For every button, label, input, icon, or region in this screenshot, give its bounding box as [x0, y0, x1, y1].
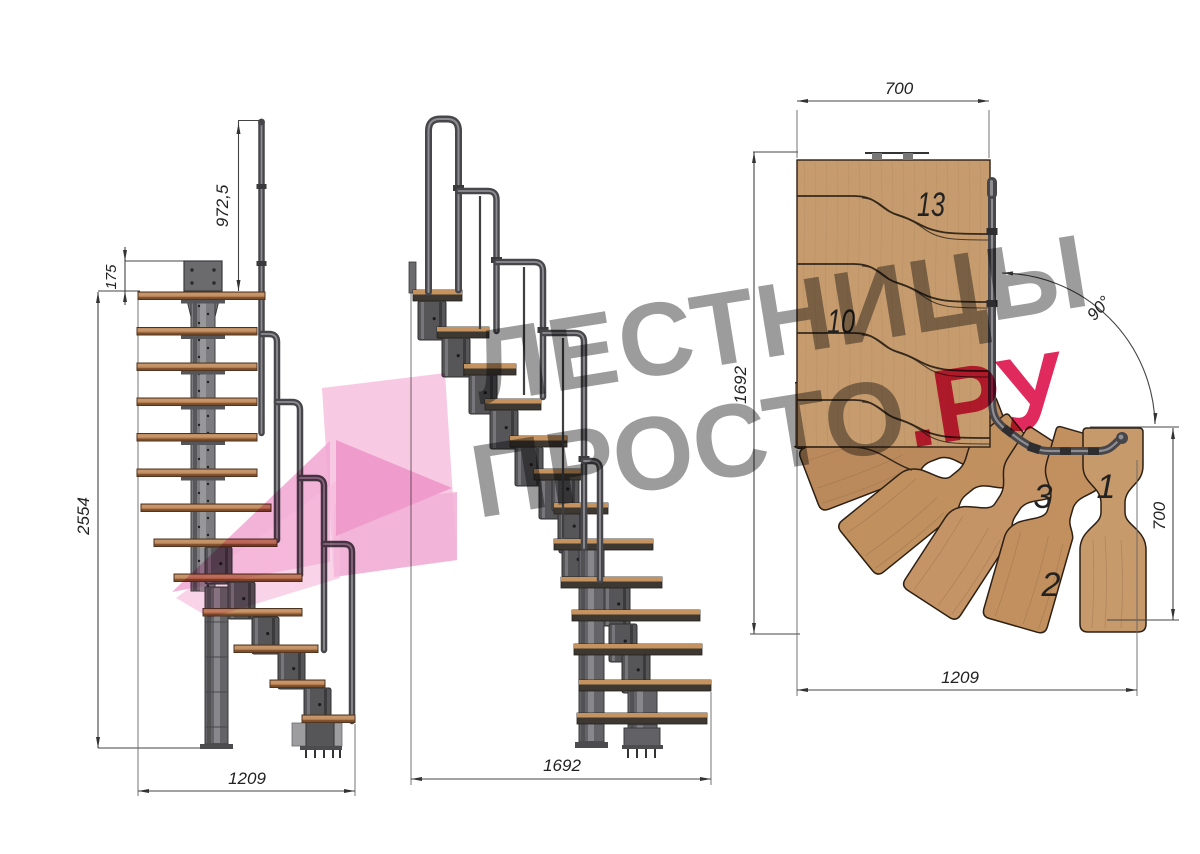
svg-text:175: 175: [103, 264, 120, 290]
svg-text:1209: 1209: [228, 769, 266, 788]
svg-text:1692: 1692: [543, 756, 581, 775]
svg-text:1209: 1209: [941, 668, 979, 687]
svg-text:700: 700: [1150, 501, 1169, 530]
svg-text:13: 13: [917, 186, 945, 224]
svg-text:3: 3: [1034, 478, 1053, 516]
svg-text:700: 700: [885, 79, 914, 98]
svg-text:1: 1: [1097, 468, 1116, 506]
svg-text:2: 2: [1041, 566, 1061, 604]
svg-text:2554: 2554: [74, 497, 93, 536]
svg-text:972,5: 972,5: [213, 184, 232, 227]
